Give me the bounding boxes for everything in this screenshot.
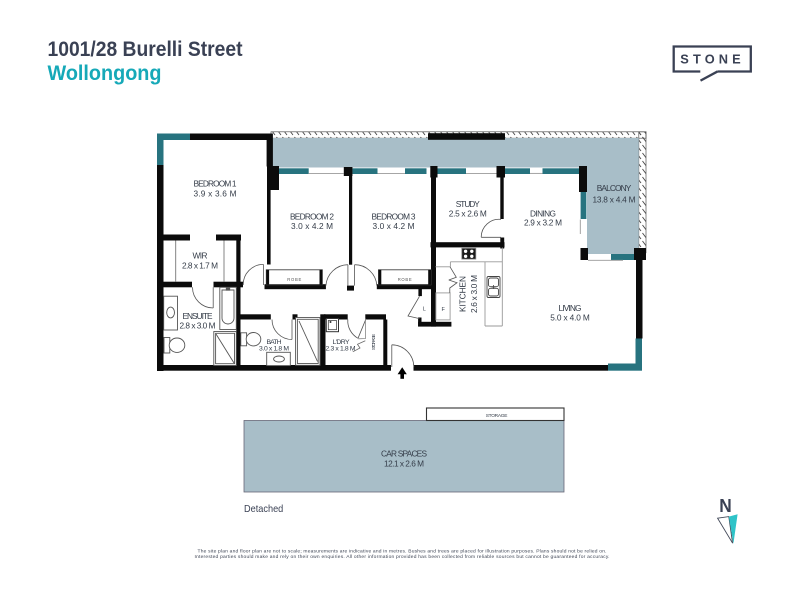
svg-text:2.6 x 3.0 M: 2.6 x 3.0 M	[469, 275, 479, 313]
svg-text:ROBE: ROBE	[398, 277, 412, 282]
svg-text:KITCHEN: KITCHEN	[457, 276, 467, 312]
svg-text:2.9 x 3.2 M: 2.9 x 3.2 M	[524, 218, 562, 228]
svg-text:5.0 x 4.0 M: 5.0 x 4.0 M	[550, 313, 590, 323]
svg-text:3.9 x 3.6 M: 3.9 x 3.6 M	[194, 189, 237, 199]
svg-text:WIR: WIR	[193, 251, 208, 261]
svg-text:Interested parties should make: Interested parties should make and rely …	[194, 554, 609, 560]
svg-text:1001/28 Burelli Street: 1001/28 Burelli Street	[48, 38, 243, 61]
svg-text:12.1 x 2.6 M: 12.1 x 2.6 M	[384, 458, 424, 468]
svg-text:2.5 x 2.6 M: 2.5 x 2.6 M	[449, 209, 487, 219]
svg-text:ROBE: ROBE	[287, 277, 301, 282]
svg-text:BALCONY: BALCONY	[597, 183, 632, 193]
svg-text:STORAGE: STORAGE	[371, 334, 377, 350]
svg-text:3.0 x 4.2 M: 3.0 x 4.2 M	[291, 221, 333, 231]
svg-text:L: L	[423, 307, 426, 313]
svg-text:STONE: STONE	[680, 52, 744, 67]
svg-text:3.0 x 4.2 M: 3.0 x 4.2 M	[373, 221, 415, 231]
svg-text:CAR SPACES: CAR SPACES	[381, 449, 427, 459]
svg-text:LIVING: LIVING	[559, 303, 582, 313]
svg-text:BEDROOM 1: BEDROOM 1	[194, 179, 237, 189]
svg-text:Detached: Detached	[244, 504, 284, 515]
svg-text:2.8 x 3.0 M: 2.8 x 3.0 M	[180, 320, 216, 330]
svg-text:STORAGE: STORAGE	[486, 413, 508, 419]
svg-text:The site plan and floor plan a: The site plan and floor plan are not to …	[198, 549, 607, 555]
svg-text:STUDY: STUDY	[456, 199, 480, 209]
svg-text:Wollongong: Wollongong	[48, 62, 162, 85]
svg-text:N: N	[719, 495, 732, 516]
svg-text:2.3 x 1.8 M: 2.3 x 1.8 M	[326, 345, 356, 352]
svg-text:3.0 x 1.8 M: 3.0 x 1.8 M	[259, 345, 289, 352]
svg-text:13.8 x 4.4 M: 13.8 x 4.4 M	[593, 195, 636, 205]
svg-text:2.8 x 1.7 M: 2.8 x 1.7 M	[182, 261, 218, 271]
